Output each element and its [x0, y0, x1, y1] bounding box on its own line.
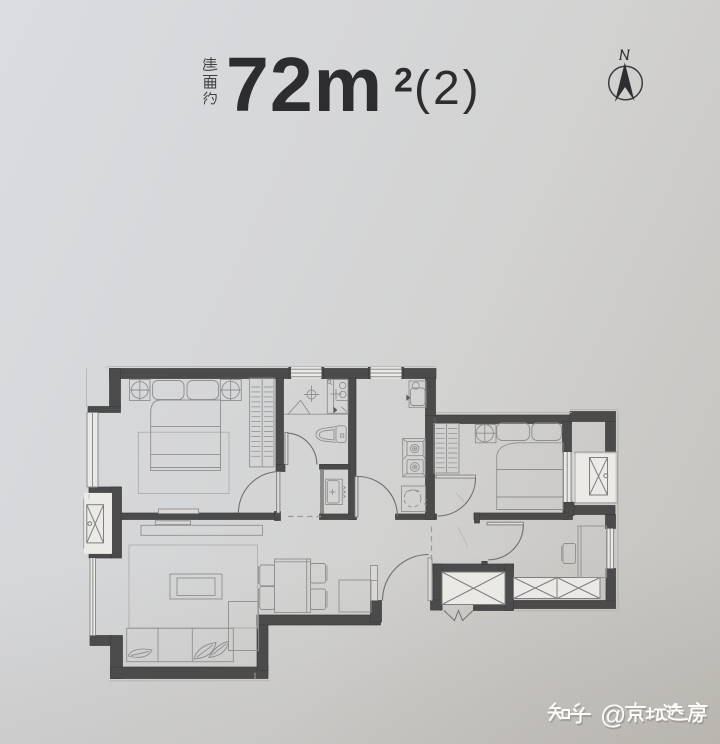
svg-text:72m: 72m — [226, 42, 383, 128]
svg-text:2: 2 — [394, 62, 413, 100]
svg-text:(2): (2) — [414, 62, 482, 115]
svg-text:@: @ — [600, 700, 626, 730]
